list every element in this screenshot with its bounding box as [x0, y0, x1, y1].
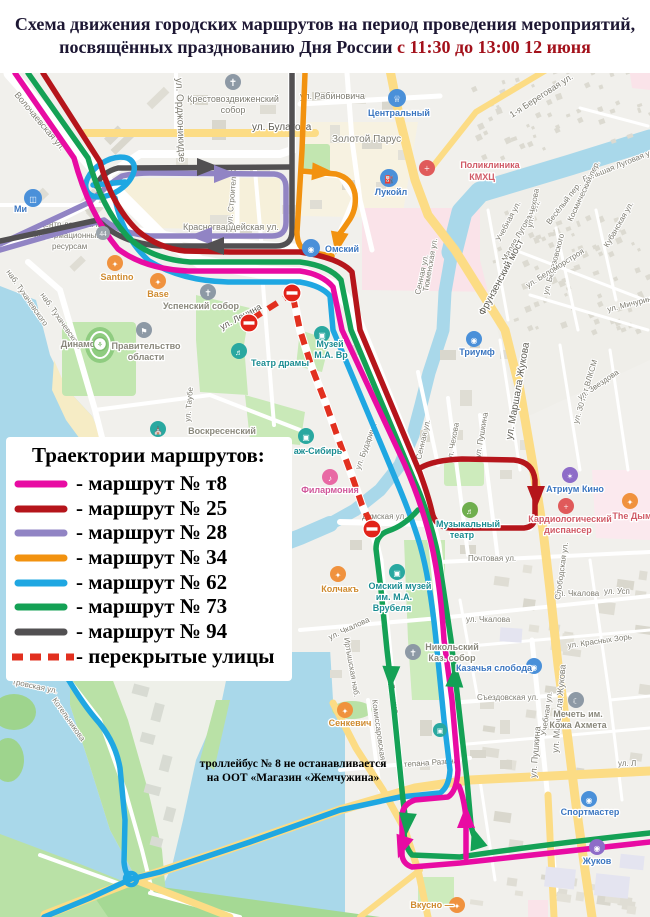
- svg-text:⚑: ⚑: [140, 327, 147, 336]
- svg-text:на ООТ «Магазин «Жемчужина»: на ООТ «Магазин «Жемчужина»: [207, 772, 380, 784]
- svg-text:Лукойл: Лукойл: [375, 187, 408, 197]
- svg-text:✝: ✝: [204, 288, 212, 298]
- svg-text:ул. Усп: ул. Усп: [604, 587, 630, 596]
- svg-text:Омский музей: Омский музей: [369, 581, 432, 591]
- svg-text:Сенкевич: Сенкевич: [329, 718, 372, 728]
- svg-text:✦: ✦: [454, 902, 461, 911]
- svg-text:✦: ✦: [335, 571, 342, 580]
- svg-text:Театр драмы: Театр драмы: [251, 358, 309, 368]
- svg-text:The Дым: The Дым: [612, 511, 650, 521]
- svg-text:диспансер: диспансер: [544, 525, 592, 535]
- svg-text:Поликлиника: Поликлиника: [460, 160, 520, 170]
- svg-text:Base: Base: [147, 289, 169, 299]
- svg-text:М.А. Вр: М.А. Вр: [314, 350, 348, 360]
- svg-text:- маршрут № 73: - маршрут № 73: [76, 594, 227, 618]
- svg-text:- маршрут № 94: - маршрут № 94: [76, 619, 228, 643]
- svg-text:им. М.А.: им. М.А.: [376, 592, 412, 602]
- svg-text:◉: ◉: [308, 245, 315, 254]
- svg-text:Santino: Santino: [101, 272, 135, 282]
- svg-text:⛪: ⛪: [153, 425, 163, 435]
- svg-text:Золотой Парус: Золотой Парус: [332, 134, 401, 145]
- svg-text:Почтовая ул.: Почтовая ул.: [468, 554, 516, 563]
- svg-text:Жуков: Жуков: [582, 856, 612, 866]
- svg-text:◉: ◉: [586, 796, 593, 805]
- svg-text:⛽: ⛽: [384, 174, 394, 184]
- svg-text:+: +: [563, 502, 568, 512]
- svg-text:- перекрытые улицы: - перекрытые улицы: [76, 644, 274, 668]
- svg-text:собор: собор: [221, 105, 246, 115]
- svg-text:Съездовская ул.: Съездовская ул.: [477, 693, 538, 702]
- svg-text:Никольский: Никольский: [425, 642, 479, 652]
- svg-text:Музей: Музей: [316, 339, 343, 349]
- svg-text:☾: ☾: [572, 697, 579, 706]
- svg-text:Мечеть им.: Мечеть им.: [553, 709, 603, 719]
- svg-text:Музыкальный: Музыкальный: [436, 519, 500, 529]
- svg-text:Вкусно —: Вкусно —: [410, 900, 453, 910]
- svg-text:театр: театр: [450, 530, 475, 540]
- svg-text:ресурсам: ресурсам: [52, 242, 87, 251]
- svg-text:✦: ✦: [627, 498, 634, 507]
- svg-text:⚘: ⚘: [97, 341, 103, 349]
- svg-text:Траектории маршрутов:: Траектории маршрутов:: [32, 443, 265, 467]
- svg-text:♪: ♪: [328, 474, 332, 483]
- svg-text:✶: ✶: [567, 472, 574, 481]
- svg-text:◉: ◉: [594, 844, 601, 853]
- svg-text:Омский: Омский: [325, 244, 359, 254]
- svg-text:✦: ✦: [155, 278, 162, 287]
- svg-text:области: области: [128, 352, 165, 362]
- svg-text:Ми: Ми: [14, 204, 27, 214]
- svg-text:- маршрут № т8: - маршрут № т8: [76, 471, 227, 495]
- svg-text:Колчакъ: Колчакъ: [321, 584, 359, 594]
- svg-text:Кожа Ахмета: Кожа Ахмета: [549, 720, 607, 730]
- svg-text:КМХЦ: КМХЦ: [469, 172, 495, 182]
- svg-text:ул. Л: ул. Л: [618, 759, 636, 768]
- svg-text:Схема движения городских маршр: Схема движения городских маршрутов на пе…: [15, 14, 635, 34]
- svg-text:Филармония: Филармония: [301, 485, 359, 495]
- svg-text:+: +: [424, 164, 430, 175]
- svg-text:- маршрут № 25: - маршрут № 25: [76, 496, 227, 520]
- svg-text:ул. Рабиновича: ул. Рабиновича: [300, 91, 365, 101]
- svg-text:- маршрут № 34: - маршрут № 34: [76, 545, 228, 569]
- svg-text:♬: ♬: [235, 348, 243, 357]
- svg-text:троллейбус № 8 не останавливае: троллейбус № 8 не останавливается: [200, 758, 387, 770]
- svg-text:Триумф: Триумф: [459, 347, 495, 357]
- svg-text:◫: ◫: [29, 195, 37, 204]
- svg-text:Кардиологический: Кардиологический: [528, 514, 611, 524]
- svg-text:✝: ✝: [409, 648, 417, 658]
- svg-text:- маршрут № 62: - маршрут № 62: [76, 570, 227, 594]
- svg-text:Казачья слобода: Казачья слобода: [456, 663, 533, 673]
- svg-text:Динамо: Динамо: [61, 339, 96, 349]
- svg-text:44: 44: [100, 230, 108, 238]
- svg-text:♕: ♕: [393, 94, 401, 104]
- svg-text:▣: ▣: [302, 433, 310, 442]
- svg-text:Спортмастер: Спортмастер: [561, 807, 620, 817]
- svg-text:Правительство: Правительство: [111, 341, 181, 351]
- svg-text:Атриум Кино: Атриум Кино: [546, 484, 604, 494]
- svg-text:аж-Сибирь: аж-Сибирь: [294, 446, 343, 456]
- svg-text:▣: ▣: [437, 727, 444, 735]
- svg-text:▣: ▣: [393, 569, 401, 578]
- svg-text:✦: ✦: [342, 707, 349, 716]
- svg-text:✦: ✦: [112, 260, 119, 269]
- svg-text:Каз. собор: Каз. собор: [428, 653, 476, 663]
- svg-text:Центральный: Центральный: [368, 108, 430, 118]
- svg-text:✝: ✝: [229, 78, 237, 89]
- svg-text:ул. Чкалова: ул. Чкалова: [466, 615, 511, 624]
- svg-text:Воскресенский: Воскресенский: [188, 426, 256, 436]
- svg-text:◉: ◉: [471, 336, 478, 345]
- svg-text:Врубеля: Врубеля: [373, 603, 411, 613]
- svg-text:- маршрут № 28: - маршрут № 28: [76, 520, 227, 544]
- svg-text:Успенский собор: Успенский собор: [163, 301, 240, 311]
- svg-text:♬: ♬: [466, 507, 474, 516]
- svg-text:Крестовоздвиженский: Крестовоздвиженский: [187, 94, 279, 104]
- svg-text:посвящённых празднованию Дня Р: посвящённых празднованию Дня России с 11…: [59, 37, 591, 57]
